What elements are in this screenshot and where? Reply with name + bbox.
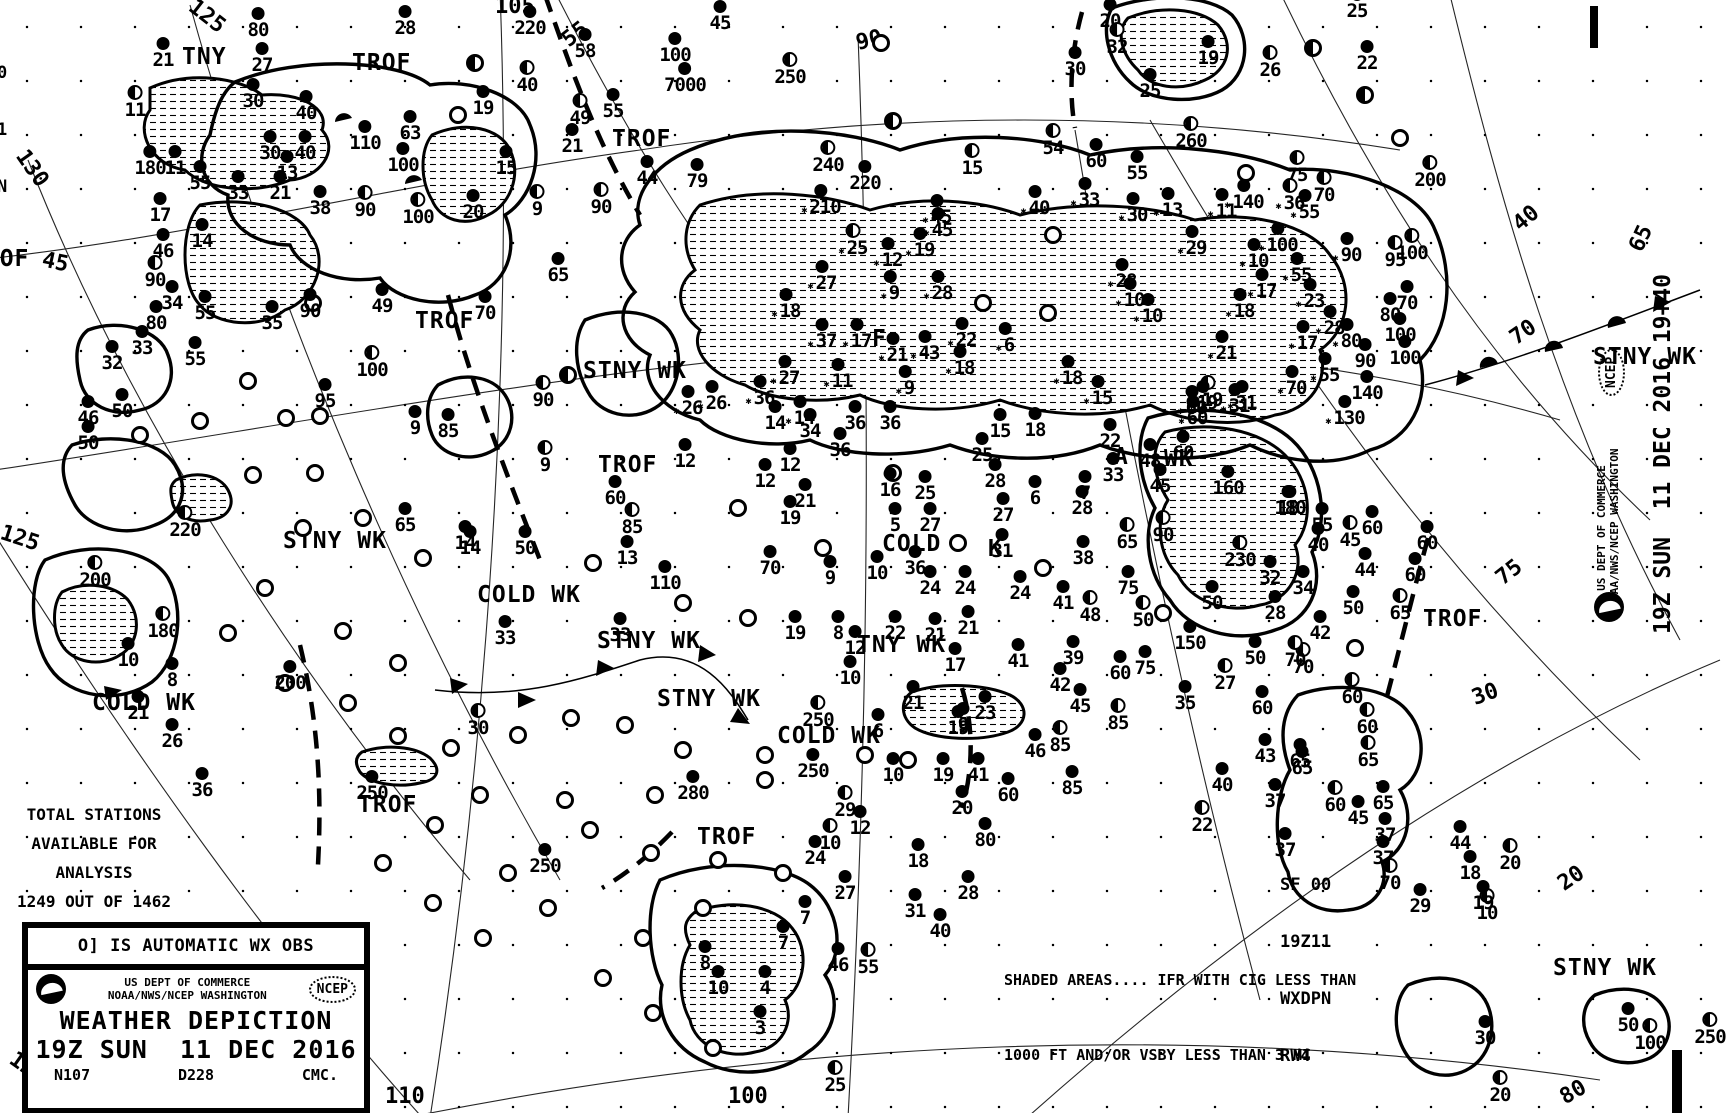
station-value: 26 <box>1260 59 1281 81</box>
station-value: 10 <box>708 977 729 999</box>
station-plot: 43 <box>1255 733 1276 766</box>
station-plot: 55 <box>603 88 624 121</box>
stats-line: ANALYSIS <box>4 858 184 887</box>
station-dot-icon <box>1194 800 1209 815</box>
station-dot-icon <box>1342 515 1357 530</box>
station-dot-icon <box>1262 45 1277 60</box>
product-id-line: SF 00 <box>0 64 7 83</box>
station-value: 65 <box>1373 792 1394 814</box>
station-value: 90 <box>1333 244 1362 266</box>
station-plot: 60 <box>1110 650 1131 683</box>
station-plot: 24 <box>805 835 826 868</box>
station-plot: 41 <box>968 752 989 785</box>
station-plot: 63 <box>400 110 421 143</box>
station-dot-icon <box>470 703 485 718</box>
station-value: 21 <box>1208 342 1237 364</box>
station-plot: 19 <box>785 610 806 643</box>
station-value: 42 <box>1310 622 1331 644</box>
station-value: 44 <box>637 167 658 189</box>
station-plot: 85 <box>438 408 459 441</box>
station-plot: 45 <box>1340 515 1361 550</box>
station-plot: 100 <box>1396 228 1427 263</box>
station-plot: 18 <box>946 345 975 378</box>
station-plot: 60 <box>1325 780 1346 815</box>
station-plot: 27 <box>771 355 800 388</box>
station-value: 60 <box>1325 794 1346 816</box>
station-dot-icon <box>782 52 797 67</box>
criteria-line: 1000 FT AND/OR VSBY LESS THAN 3 MI <box>962 1043 1576 1068</box>
station-plot: 33 <box>132 325 153 358</box>
station-value: 33 <box>132 337 153 359</box>
station-plot: 9 <box>957 702 970 735</box>
station-value: 55 <box>190 172 211 194</box>
station-value: 34 <box>800 420 821 442</box>
station-dot-icon <box>1217 658 1232 673</box>
station-value: 40 <box>1308 534 1329 556</box>
station-plot: 10 <box>1134 293 1163 326</box>
station-plot: 40 <box>1308 522 1329 555</box>
station-dot-icon <box>538 440 553 455</box>
station-plot: 70 <box>1380 858 1401 893</box>
station-value: 90 <box>300 300 321 322</box>
station-plot: 12 <box>845 625 866 658</box>
station-dot-icon <box>1392 588 1407 603</box>
station-value: 21 <box>562 135 583 157</box>
station-value: 27 <box>920 514 941 536</box>
product-id-block-clipped: SF 00 19Z11 WXDPN RW4 <box>0 26 7 292</box>
station-value: 27 <box>771 367 800 389</box>
station-plot: 4 <box>759 965 772 998</box>
station-value: 110 <box>649 572 680 594</box>
station-value: 11 <box>165 157 186 179</box>
station-value: 19 <box>1198 47 1219 69</box>
station-plot: 7 <box>777 920 790 953</box>
station-plot: 16 <box>880 467 901 500</box>
station-dot-icon <box>810 695 825 710</box>
station-value: 55 <box>1291 201 1320 223</box>
station-value: 40 <box>1021 197 1050 219</box>
station-dot-icon <box>1155 510 1170 525</box>
station-circle-icon <box>191 412 209 430</box>
station-dot-icon <box>1502 838 1517 853</box>
station-value: 38 <box>310 197 331 219</box>
station-dot-icon <box>837 785 852 800</box>
station-dot-icon <box>1109 22 1124 37</box>
station-plot: 28 <box>1072 485 1093 518</box>
station-plot: 90 <box>533 375 554 410</box>
station-plot: 3 <box>754 1005 767 1038</box>
station-value: 280 <box>677 782 708 804</box>
station-plot: 60 <box>1362 505 1383 538</box>
ncep-logo-icon: NCEP <box>309 976 356 1003</box>
station-plot: 25 <box>1347 0 1368 21</box>
station-plot: 23 <box>975 690 996 723</box>
station-value: 250 <box>529 855 560 877</box>
station-dot-icon <box>127 85 142 100</box>
station-value: 11 <box>824 370 853 392</box>
station-plot: 180 <box>147 606 178 641</box>
station-circle-icon <box>642 844 660 862</box>
station-dot-icon <box>846 223 861 238</box>
station-plot: 37 <box>808 318 837 351</box>
station-circle-icon <box>1154 604 1172 622</box>
station-dot-icon <box>535 375 550 390</box>
station-value: 19 <box>1189 392 1218 414</box>
station-value: 33 <box>610 624 631 646</box>
station-value: 30 <box>243 90 264 112</box>
station-value: 50 <box>1202 592 1223 614</box>
footer-n: N107 <box>54 1066 90 1084</box>
station-value: 30 <box>468 717 489 739</box>
station-plot: 65 <box>1358 735 1379 770</box>
station-plot: 14 <box>765 400 786 433</box>
station-dot-icon <box>964 143 979 158</box>
station-value: 12 <box>755 470 776 492</box>
station-plot: 15 <box>1084 375 1113 408</box>
station-plot: 18 <box>772 288 801 321</box>
station-plot: 180 <box>134 145 165 178</box>
station-dot-icon <box>1045 123 1060 138</box>
station-plot: 50 <box>1245 635 1266 668</box>
station-circle-icon <box>499 864 517 882</box>
station-value: 33 <box>1103 464 1124 486</box>
product-id-line: SF 00 <box>1280 876 1331 895</box>
station-plot: 24 <box>955 565 976 598</box>
station-value: 22 <box>1100 430 1121 452</box>
station-plot: 46 <box>828 942 849 975</box>
footer-d: D228 <box>178 1066 214 1084</box>
station-value: 50 <box>515 537 536 559</box>
station-value: 49 <box>372 295 393 317</box>
station-plot: 41 <box>1008 638 1029 671</box>
station-plot: 8 <box>832 610 845 643</box>
station-circle-icon <box>389 654 407 672</box>
product-id-line: RW4 <box>1280 1047 1331 1066</box>
station-value: 28 <box>924 282 953 304</box>
station-value: 10 <box>840 667 861 689</box>
station-plot: 19 <box>1189 380 1218 413</box>
station-value: 60 <box>1362 517 1383 539</box>
station-plot: 200 <box>79 555 110 590</box>
station-plot: 18 <box>1226 288 1255 321</box>
station-plot: 21 <box>879 332 908 365</box>
station-value: 63 <box>400 122 421 144</box>
station-value: 26 <box>162 730 183 752</box>
station-dot-icon <box>1359 702 1374 717</box>
station-circle-icon <box>581 821 599 839</box>
station-plot: 70 <box>1278 365 1307 398</box>
station-plot: 40 <box>1212 762 1233 795</box>
station-value: 36 <box>830 439 851 461</box>
station-value: 23 <box>975 702 996 724</box>
station-plot: 250 <box>356 770 387 803</box>
station-plot: 40 <box>296 90 317 123</box>
station-value: 70 <box>1285 649 1306 671</box>
station-value: 46 <box>1025 740 1046 762</box>
station-circle-icon <box>131 426 149 444</box>
station-value: 65 <box>395 514 416 536</box>
station-value: 34 <box>1293 577 1314 599</box>
station-value: 15 <box>496 157 517 179</box>
station-plot: 60 <box>998 772 1019 805</box>
station-plot: 45 <box>1348 795 1369 828</box>
station-value: 29 <box>1178 237 1207 259</box>
station-plot: 15 <box>496 145 517 178</box>
title-legend-box: O] IS AUTOMATIC WX OBS US DEPT OF COMMER… <box>22 922 370 1113</box>
station-plot: 50 <box>112 388 133 421</box>
station-plot: 30 <box>1119 192 1148 225</box>
station-dot-icon <box>357 185 372 200</box>
station-plot: 100 <box>1389 335 1420 368</box>
station-plot: 17 <box>843 318 872 351</box>
station-circle-icon <box>616 716 634 734</box>
station-plot: 55 <box>858 942 879 977</box>
station-value: 55 <box>858 956 879 978</box>
station-value: 60 <box>1252 697 1273 719</box>
station-circle-icon <box>739 609 757 627</box>
station-value: 250 <box>802 709 833 731</box>
station-value: 60 <box>1110 662 1131 684</box>
station-plot: 31 <box>1221 383 1250 416</box>
station-dot-icon <box>530 184 545 199</box>
station-dot-icon <box>519 60 534 75</box>
station-plot: 21 <box>270 170 291 203</box>
station-value: 21 <box>958 617 979 639</box>
station-plot: 32 <box>1260 555 1281 588</box>
station-plot: 50 <box>1202 580 1223 613</box>
station-value: 45 <box>710 12 731 34</box>
station-plot: 55 <box>1311 352 1340 385</box>
station-plot: 15 <box>962 143 983 178</box>
station-value: 31 <box>992 540 1013 562</box>
station-plot: 21 <box>153 37 174 70</box>
station-plot: 50 <box>78 420 99 453</box>
station-plot: 150 <box>1174 620 1205 653</box>
station-stats: TOTAL STATIONS AVAILABLE FOR ANALYSIS 12… <box>4 800 184 916</box>
station-value: 25 <box>1347 0 1368 22</box>
station-plot: 25 <box>825 1060 846 1095</box>
station-dot-icon <box>1360 735 1375 750</box>
station-plot: 32 <box>102 340 123 373</box>
station-circle-icon <box>466 54 484 72</box>
station-plot: 17 <box>1289 320 1318 353</box>
station-value: 40 <box>296 102 317 124</box>
station-value: 43 <box>911 342 940 364</box>
station-value: 28 <box>395 17 416 39</box>
station-value: 140 <box>1224 191 1263 213</box>
station-circle-icon <box>277 409 295 427</box>
station-dot-icon <box>155 606 170 621</box>
station-value: 30 <box>1065 58 1086 80</box>
station-value: 60 <box>1405 564 1426 586</box>
station-value: 19 <box>1473 892 1494 914</box>
station-value: 8 <box>167 669 177 691</box>
station-value: 26 <box>674 397 703 419</box>
station-value: 50 <box>1343 597 1364 619</box>
corner-mark <box>1672 1050 1682 1113</box>
station-value: 38 <box>1073 547 1094 569</box>
station-value: 35 <box>1175 692 1196 714</box>
station-dot-icon <box>822 818 837 833</box>
station-plot: 70 <box>475 290 496 323</box>
station-value: 3 <box>755 1017 765 1039</box>
station-value: 17 <box>150 204 171 226</box>
station-value: 55 <box>185 348 206 370</box>
station-plot: 22 <box>1192 800 1213 835</box>
station-plot: 220 <box>514 5 545 38</box>
station-plot: 90 <box>355 185 376 220</box>
agency-line2: NOAA/NWS/NCEP WASHINGTON <box>108 989 267 1002</box>
station-dot-icon <box>1232 535 1247 550</box>
station-value: 22 <box>1192 814 1213 836</box>
station-value: 24 <box>955 577 976 599</box>
station-dot-icon <box>1404 228 1419 243</box>
station-circle-icon <box>644 1004 662 1022</box>
station-value: 6 <box>873 720 883 742</box>
station-plot: 33 <box>610 612 631 645</box>
station-value: 12 <box>780 454 801 476</box>
station-value: 28 <box>958 882 979 904</box>
side-noaa-logo-icon <box>1594 592 1624 622</box>
station-plot: 12 <box>874 237 903 270</box>
station-value: 65 <box>1358 749 1379 771</box>
station-value: 9 <box>410 417 420 439</box>
station-plot: 33 <box>1103 452 1124 485</box>
station-value: 100 <box>1389 347 1420 369</box>
station-value: 75 <box>1135 657 1156 679</box>
station-dot-icon <box>827 1060 842 1075</box>
station-value: 32 <box>1107 36 1128 58</box>
station-plot: 12 <box>850 805 871 838</box>
station-value: 70 <box>475 302 496 324</box>
station-plot: 19 <box>906 227 935 260</box>
station-value: 90 <box>355 199 376 221</box>
station-plot: 60 <box>1252 685 1273 718</box>
station-plot: 38 <box>1073 535 1094 568</box>
station-dot-icon <box>1110 698 1125 713</box>
station-plot: 30 <box>468 703 489 738</box>
station-circle-icon <box>389 727 407 745</box>
station-circle-icon <box>856 746 874 764</box>
station-plot: 90 <box>591 182 612 217</box>
station-plot: 220 <box>849 160 880 193</box>
station-plot: 33 <box>495 615 516 648</box>
station-plot: 55 <box>195 290 216 323</box>
station-plot: 250 <box>1694 1012 1725 1047</box>
station-value: 58 <box>575 40 596 62</box>
station-plot: 11 <box>165 145 186 178</box>
station-circle-icon <box>424 894 442 912</box>
station-value: 70 <box>1380 872 1401 894</box>
station-plot: 33 <box>1071 177 1100 210</box>
station-plot: 7 <box>799 895 812 928</box>
station-plot: 18 <box>1460 850 1481 883</box>
station-plot: 55 <box>1127 150 1148 183</box>
station-value: 41 <box>1008 650 1029 672</box>
corner-mark <box>1590 6 1598 48</box>
station-plot: 60 <box>1405 552 1426 585</box>
station-circle-icon <box>594 969 612 987</box>
station-plot: 6 <box>996 322 1015 355</box>
weather-depiction-chart: TNYTROFTROFTROFTROFSTNY WKSTNY WKCOLD WK… <box>0 0 1728 1113</box>
station-value: 12 <box>850 817 871 839</box>
station-value: 14 <box>192 230 213 252</box>
station-plot: 31 <box>905 888 926 921</box>
station-circle-icon <box>509 726 527 744</box>
station-plot: 9 <box>881 270 900 303</box>
station-plot: 14 <box>455 520 476 553</box>
station-value: 25 <box>839 237 868 259</box>
station-plot: 240 <box>812 140 843 175</box>
station-value: 25 <box>825 1074 846 1096</box>
station-value: 150 <box>1174 632 1205 654</box>
station-plot: 9 <box>824 555 837 588</box>
station-value: 31 <box>905 900 926 922</box>
station-value: 18 <box>772 300 801 322</box>
station-plot: 230 <box>1224 535 1255 570</box>
station-plot: 280 <box>677 770 708 803</box>
station-value: 27 <box>252 54 273 76</box>
station-circle-icon <box>374 854 392 872</box>
station-value: 250 <box>797 760 828 782</box>
station-plot: 100 <box>1634 1018 1665 1053</box>
station-plot: 28 <box>924 270 953 303</box>
station-plot: 55 <box>1291 189 1320 222</box>
station-value: 9 <box>958 714 968 736</box>
station-circle-icon <box>729 499 747 517</box>
station-value: 41 <box>1053 592 1074 614</box>
station-plot: 33 <box>228 170 249 203</box>
station-value: 19 <box>933 764 954 786</box>
station-value: 21 <box>153 49 174 71</box>
station-value: 48 <box>1080 604 1101 626</box>
station-value: 90 <box>1153 524 1174 546</box>
station-plot: 110 <box>649 560 680 593</box>
station-circle-icon <box>539 899 557 917</box>
station-value: 65 <box>1290 750 1311 772</box>
station-circle-icon <box>556 791 574 809</box>
station-plot: 60 <box>1086 138 1107 171</box>
station-plot: 35 <box>262 300 283 333</box>
station-plot: 20 <box>463 189 484 222</box>
station-plot: 65 <box>1117 517 1138 552</box>
station-value: 33 <box>228 182 249 204</box>
station-circle-icon <box>442 739 460 757</box>
station-circle-icon <box>756 771 774 789</box>
station-value: 13 <box>1154 199 1183 221</box>
station-plot: 37 <box>1265 778 1286 811</box>
station-circle-icon <box>884 112 902 130</box>
station-value: 17 <box>1289 332 1318 354</box>
station-value: 100 <box>356 359 387 381</box>
station-dot-icon <box>860 942 875 957</box>
station-plot: 90 <box>1153 510 1174 545</box>
station-plot: 34 <box>800 408 821 441</box>
station-value: 29 <box>1410 895 1431 917</box>
station-value: 21 <box>128 702 149 724</box>
station-plot: 32 <box>1107 22 1128 57</box>
station-plot: 27 <box>252 42 273 75</box>
station-circle-icon <box>584 554 602 572</box>
station-value: 200 <box>79 569 110 591</box>
station-value: 90 <box>1355 350 1376 372</box>
station-plot: 26 <box>674 385 703 418</box>
station-circle-icon <box>294 519 312 537</box>
station-value: 25 <box>1140 80 1161 102</box>
station-value: 9 <box>540 454 550 476</box>
station-plot: 40 <box>930 908 951 941</box>
station-plot: 40 <box>295 130 316 163</box>
